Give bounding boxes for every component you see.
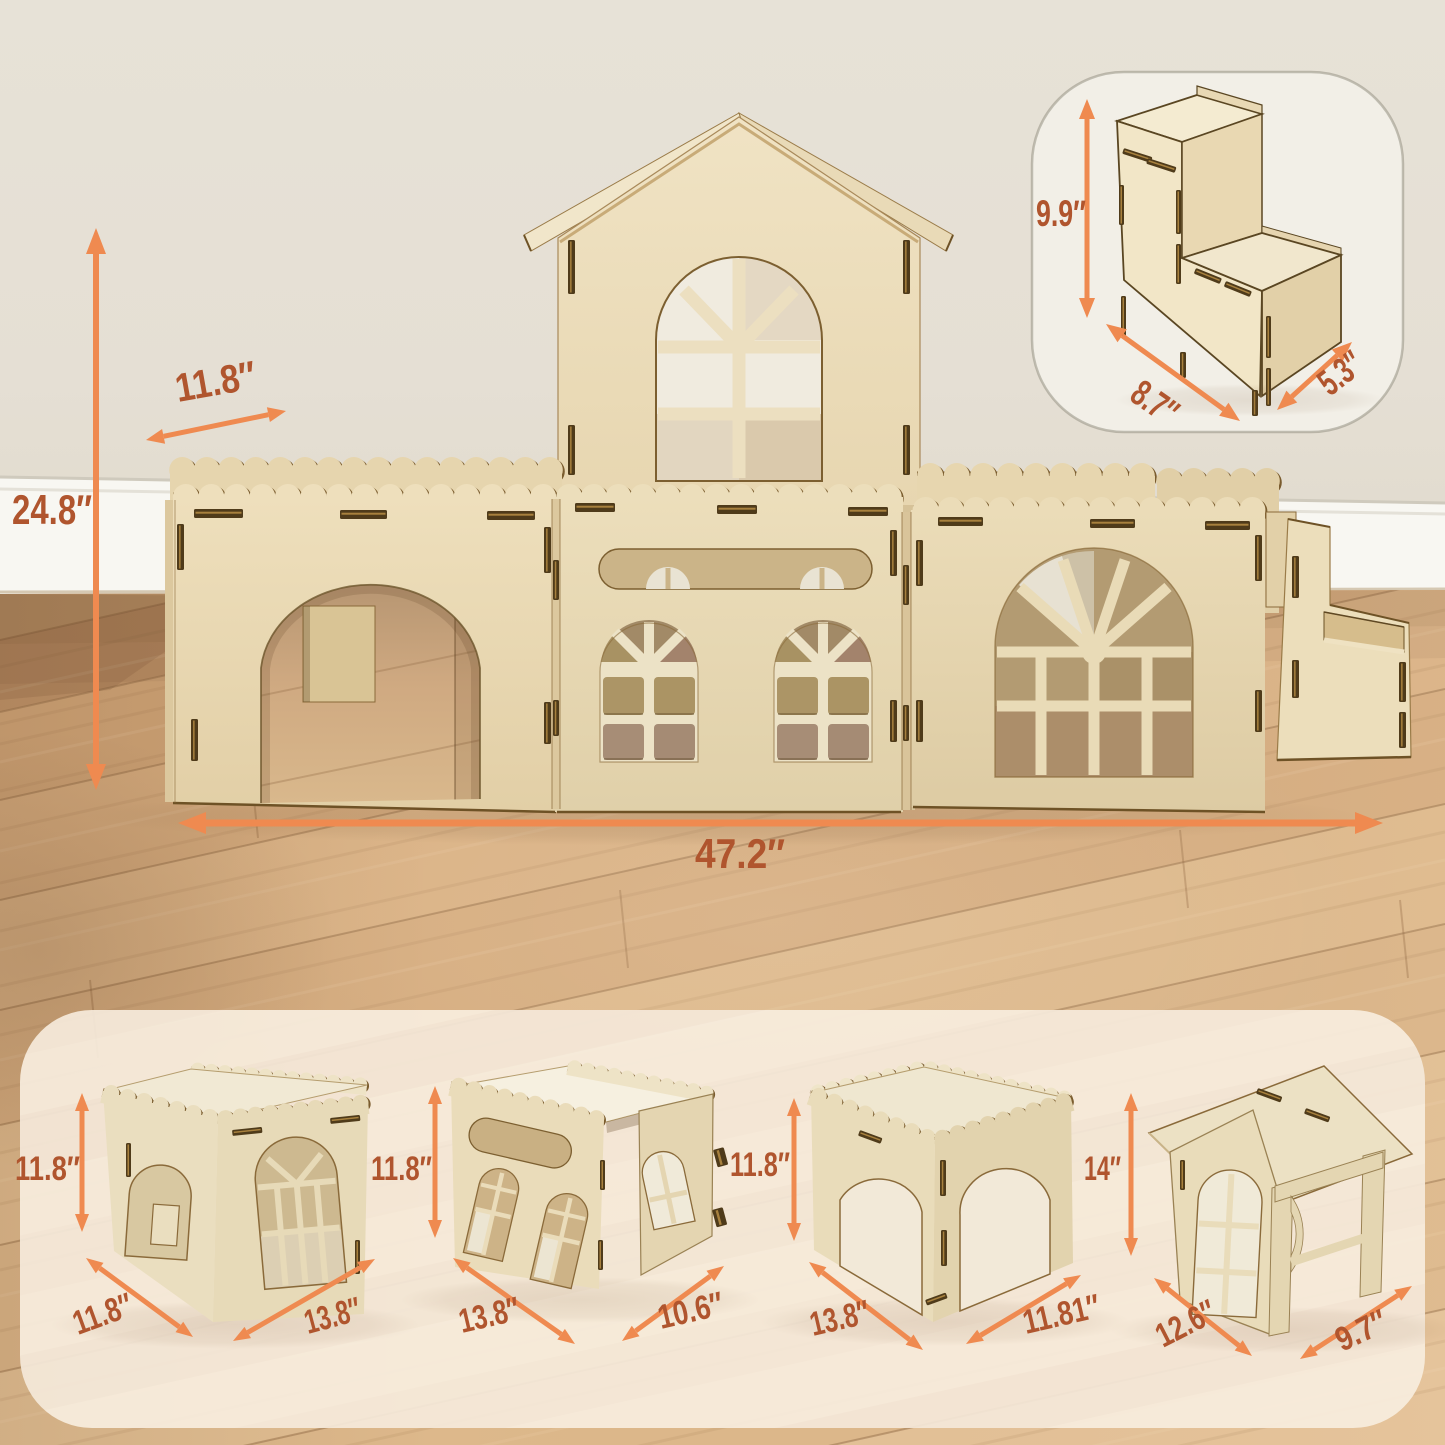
svg-text:11.8″: 11.8″ bbox=[15, 1150, 80, 1188]
svg-text:9.9″: 9.9″ bbox=[1036, 193, 1086, 234]
svg-text:24.8″: 24.8″ bbox=[12, 486, 92, 533]
svg-text:11.8″: 11.8″ bbox=[371, 1150, 432, 1188]
svg-text:47.2″: 47.2″ bbox=[695, 830, 785, 877]
svg-text:14″: 14″ bbox=[1084, 1150, 1121, 1188]
svg-text:11.8″: 11.8″ bbox=[730, 1146, 790, 1184]
